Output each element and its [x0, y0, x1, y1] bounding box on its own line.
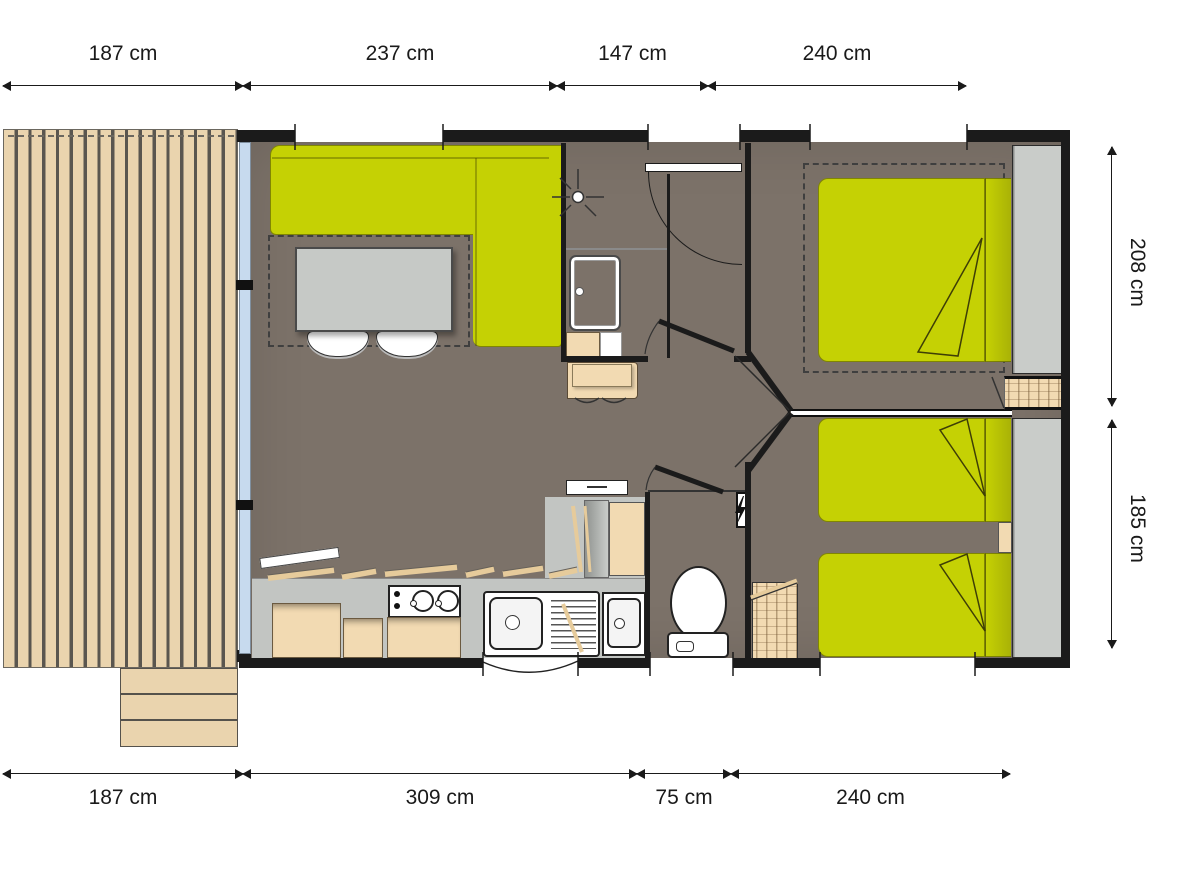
stove-burner — [437, 590, 459, 612]
deck-step — [120, 668, 238, 694]
deck-step — [120, 694, 238, 720]
bathroom-cabinet — [566, 332, 600, 358]
single-bed-pillow — [985, 553, 1011, 657]
sink-drain — [505, 615, 520, 630]
wall-corner — [237, 130, 251, 142]
second-bedroom-window — [820, 658, 975, 668]
stove-knob — [394, 603, 400, 609]
sliding-door-handle — [236, 280, 253, 290]
double-bed — [818, 178, 985, 362]
dimension-label: 187 cm — [3, 42, 243, 66]
shower-tray-edge — [566, 248, 668, 250]
bathroom-west-wall — [561, 143, 566, 362]
bedroom-partition-wall — [791, 409, 1012, 417]
dimension-line — [243, 85, 557, 86]
bedroom-storage-unit — [752, 582, 798, 659]
double-bed-pillow — [985, 178, 1011, 362]
dimension-line — [637, 773, 731, 774]
bathroom-south-wall — [734, 356, 751, 362]
dimension-line — [1111, 147, 1112, 406]
fridge — [584, 500, 609, 578]
living-room-window — [295, 130, 443, 142]
dimension-label: 240 cm — [708, 42, 966, 66]
sofa-arm-section — [473, 145, 562, 347]
dimension-label: 208 cm — [1125, 238, 1149, 307]
washbasin-drain — [575, 287, 584, 296]
hall-dressing-table-top — [572, 364, 632, 387]
bathroom-south-wall — [561, 356, 648, 362]
dimension-line — [1111, 420, 1112, 648]
toilet-bowl — [670, 566, 727, 640]
dimension-label: 240 cm — [731, 786, 1010, 810]
stove-knob — [394, 591, 400, 597]
master-bedroom-window — [810, 130, 967, 142]
entry-door-leaf — [645, 163, 742, 172]
dimension-label: 185 cm — [1125, 494, 1149, 563]
dimension-line — [243, 773, 637, 774]
wc-west-wall — [645, 492, 650, 659]
dining-table — [295, 247, 453, 332]
bathroom-cabinet-door — [600, 332, 622, 358]
kitchen-cabinet — [387, 617, 461, 658]
sliding-glass-door — [239, 142, 251, 654]
dimension-label: 187 cm — [3, 786, 243, 810]
wc-north-wall — [648, 490, 745, 492]
dimension-label: 75 cm — [637, 786, 731, 810]
wardrobe — [1012, 418, 1062, 658]
floor-plan: 187 cm 237 cm 147 cm 240 cm 187 cm 309 c… — [0, 0, 1200, 870]
entry-door-opening — [648, 130, 740, 142]
single-bed-pillow — [985, 418, 1011, 522]
dimension-label: 237 cm — [243, 42, 557, 66]
side-door-opening — [650, 658, 733, 668]
wardrobe — [1012, 145, 1062, 374]
sink-drainer — [551, 600, 596, 649]
deck-step — [120, 720, 238, 747]
secondary-basin-drain — [614, 618, 625, 629]
deck-edge-dashed — [8, 135, 234, 137]
stove-burner — [412, 590, 434, 612]
exterior-wall-east — [1061, 130, 1070, 668]
dimension-label: 309 cm — [243, 786, 637, 810]
single-bed — [818, 553, 985, 657]
wood-deck — [3, 129, 238, 668]
dimension-label: 147 cm — [557, 42, 708, 66]
nightstand — [998, 522, 1012, 553]
sliding-door-handle — [236, 500, 253, 510]
single-bed — [818, 418, 985, 522]
dimension-line — [3, 773, 243, 774]
dimension-line — [3, 85, 243, 86]
hall-wall — [745, 462, 751, 659]
storage-shelf-unit — [1004, 376, 1062, 410]
wall-shelf — [566, 480, 628, 495]
kitchen-cabinet — [272, 603, 341, 658]
dimension-line — [557, 85, 708, 86]
toilet-flush-button — [676, 641, 694, 652]
kitchen-window — [483, 658, 578, 668]
kitchen-cabinet — [343, 618, 383, 658]
dimension-line — [708, 85, 966, 86]
dimension-line — [731, 773, 1010, 774]
hall-wall — [745, 143, 751, 353]
fridge-door-open — [609, 502, 645, 576]
